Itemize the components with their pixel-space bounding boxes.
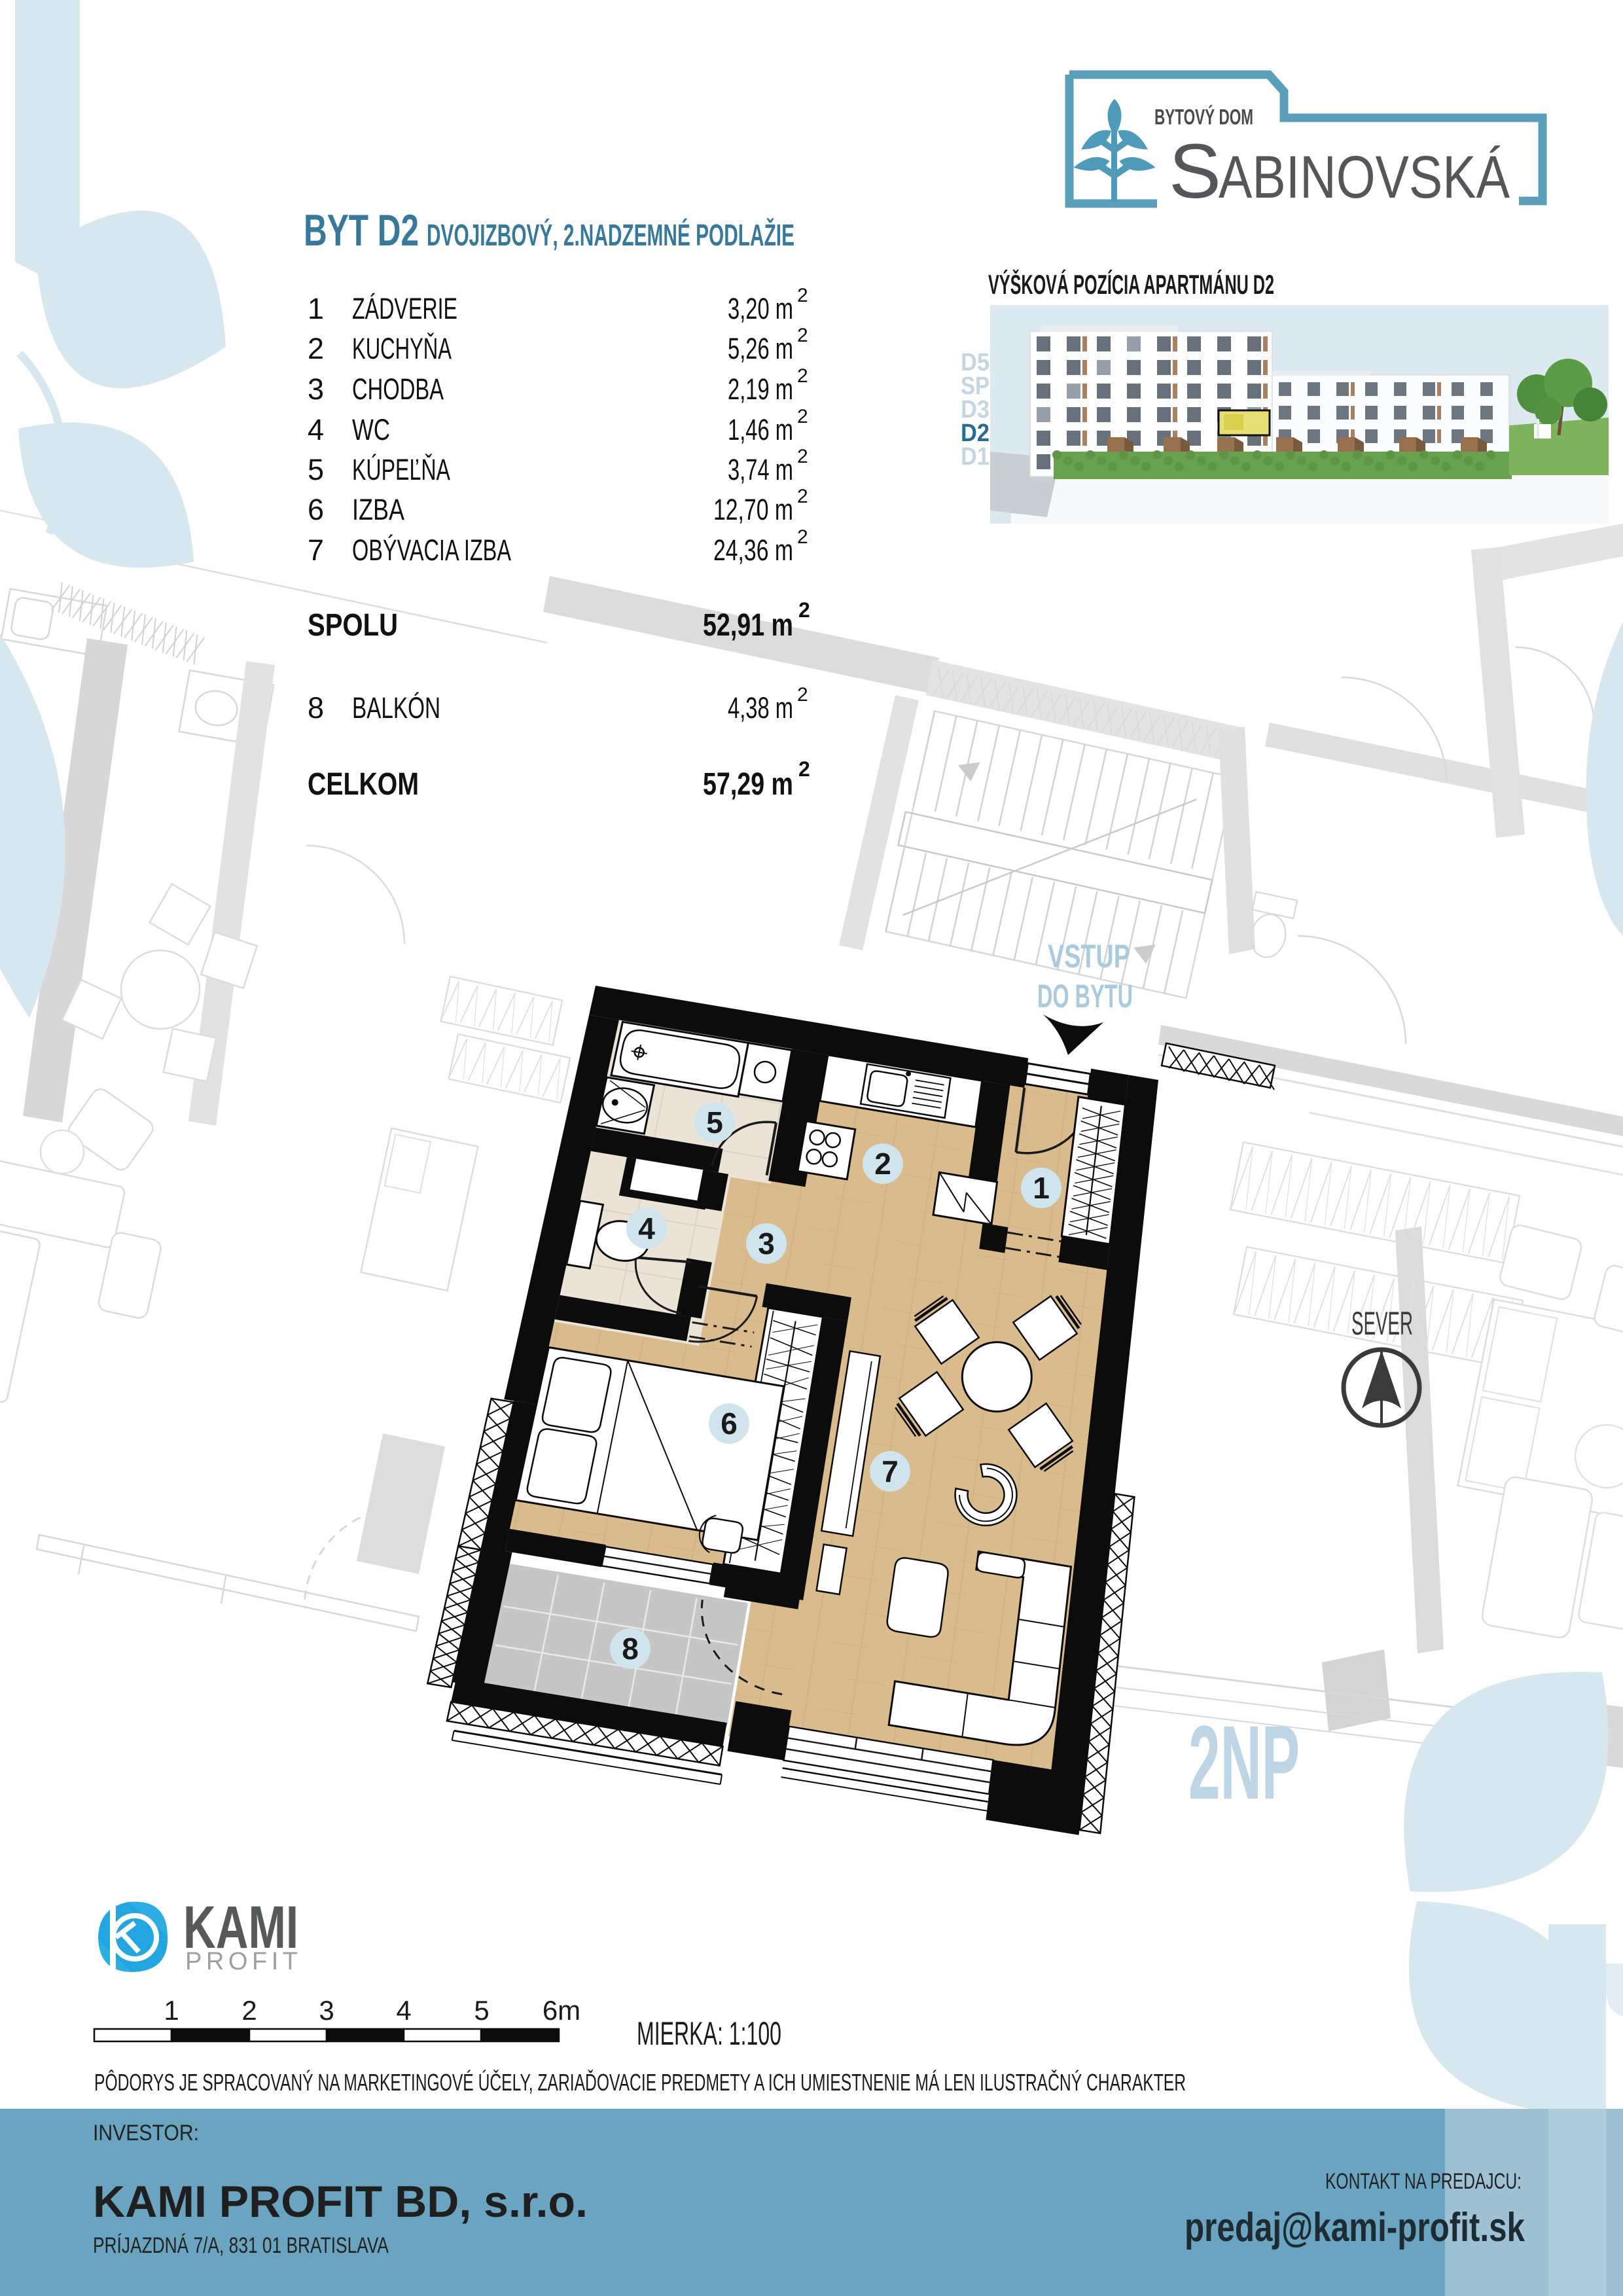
svg-text:WC: WC xyxy=(352,413,390,446)
svg-text:1: 1 xyxy=(1033,1171,1050,1205)
svg-text:3: 3 xyxy=(758,1227,775,1261)
svg-text:IZBA: IZBA xyxy=(352,493,404,526)
svg-text:D1: D1 xyxy=(961,443,990,471)
svg-text:KONTAKT NA PREDAJCU:: KONTAKT NA PREDAJCU: xyxy=(1325,2169,1522,2194)
svg-text:MIERKA: 1:100: MIERKA: 1:100 xyxy=(637,2015,781,2052)
svg-text:2NP: 2NP xyxy=(1188,1704,1300,1821)
svg-text:2: 2 xyxy=(797,446,808,467)
svg-text:7: 7 xyxy=(882,1454,899,1488)
svg-text:3: 3 xyxy=(319,1995,334,2026)
svg-text:8: 8 xyxy=(308,691,324,725)
svg-text:BALKÓN: BALKÓN xyxy=(352,691,440,725)
svg-text:DVOJIZBOVÝ, 2.NADZEMNÉ PODLAŽI: DVOJIZBOVÝ, 2.NADZEMNÉ PODLAŽIE xyxy=(427,218,794,252)
svg-text:BYTOVÝ DOM: BYTOVÝ DOM xyxy=(1154,105,1253,129)
svg-text:7: 7 xyxy=(308,533,324,567)
svg-text:PÔDORYS JE SPRACOVANÝ NA MARKE: PÔDORYS JE SPRACOVANÝ NA MARKETINGOVÉ ÚČ… xyxy=(94,2069,1186,2096)
svg-text:DO BYTU: DO BYTU xyxy=(1037,978,1133,1014)
svg-text:KÚPEĽŇA: KÚPEĽŇA xyxy=(352,453,450,486)
svg-text:2: 2 xyxy=(798,598,810,622)
svg-text:2: 2 xyxy=(797,526,808,548)
svg-text:2: 2 xyxy=(797,486,808,507)
svg-text:3,20 m: 3,20 m xyxy=(728,292,793,325)
svg-text:SEVER: SEVER xyxy=(1351,1305,1413,1342)
svg-text:PRÍJAZDNÁ 7/A, 831 01 BRATISLA: PRÍJAZDNÁ 7/A, 831 01 BRATISLAVA xyxy=(93,2233,389,2258)
svg-text:2: 2 xyxy=(798,757,810,781)
svg-text:1,46 m: 1,46 m xyxy=(728,413,793,446)
svg-text:1: 1 xyxy=(308,292,324,325)
svg-text:4: 4 xyxy=(396,1995,411,2026)
svg-text:KAMI PROFIT BD, s.r.o.: KAMI PROFIT BD, s.r.o. xyxy=(93,2177,588,2227)
svg-text:4,38 m: 4,38 m xyxy=(728,691,793,725)
svg-text:ABINOVSKÁ: ABINOVSKÁ xyxy=(1219,144,1510,211)
svg-text:2: 2 xyxy=(797,406,808,427)
svg-text:12,70 m: 12,70 m xyxy=(713,493,793,526)
svg-text:2: 2 xyxy=(874,1147,891,1181)
svg-text:S: S xyxy=(1169,128,1221,215)
svg-text:CHODBA: CHODBA xyxy=(352,372,444,406)
svg-text:2,19 m: 2,19 m xyxy=(728,372,793,406)
svg-text:1: 1 xyxy=(164,1995,179,2026)
svg-text:8: 8 xyxy=(622,1632,639,1666)
svg-text:52,91 m: 52,91 m xyxy=(703,608,793,643)
svg-text:2: 2 xyxy=(797,365,808,387)
svg-text:VSTUP: VSTUP xyxy=(1048,938,1130,975)
svg-text:OBÝVACIA IZBA: OBÝVACIA IZBA xyxy=(352,533,511,567)
svg-text:CELKOM: CELKOM xyxy=(308,767,419,802)
svg-text:VÝŠKOVÁ POZÍCIA APARTMÁNU D2: VÝŠKOVÁ POZÍCIA APARTMÁNU D2 xyxy=(988,268,1274,300)
svg-text:5: 5 xyxy=(474,1995,489,2026)
svg-text:57,29 m: 57,29 m xyxy=(703,767,793,802)
svg-text:SPOLU: SPOLU xyxy=(308,608,398,643)
svg-text:2: 2 xyxy=(797,684,808,706)
svg-text:3: 3 xyxy=(308,372,324,406)
svg-text:2: 2 xyxy=(308,332,324,365)
svg-text:4: 4 xyxy=(638,1211,655,1246)
svg-text:KUCHYŇA: KUCHYŇA xyxy=(352,332,452,365)
svg-text:INVESTOR:: INVESTOR: xyxy=(93,2121,199,2145)
svg-text:5: 5 xyxy=(706,1105,723,1139)
svg-text:ZÁDVERIE: ZÁDVERIE xyxy=(352,292,457,325)
svg-text:predaj@kami-profit.sk: predaj@kami-profit.sk xyxy=(1185,2205,1525,2250)
svg-text:6: 6 xyxy=(721,1407,738,1441)
svg-text:2: 2 xyxy=(241,1995,257,2026)
svg-text:5: 5 xyxy=(308,453,324,486)
svg-text:6: 6 xyxy=(308,493,324,526)
svg-text:2: 2 xyxy=(797,325,808,346)
svg-text:4: 4 xyxy=(308,413,324,446)
svg-text:24,36 m: 24,36 m xyxy=(713,533,793,567)
svg-text:3,74 m: 3,74 m xyxy=(728,453,793,486)
svg-text:2: 2 xyxy=(797,285,808,306)
svg-text:5,26 m: 5,26 m xyxy=(728,332,793,365)
svg-text:6m: 6m xyxy=(543,1995,580,2026)
svg-text:BYT D2: BYT D2 xyxy=(304,206,419,255)
